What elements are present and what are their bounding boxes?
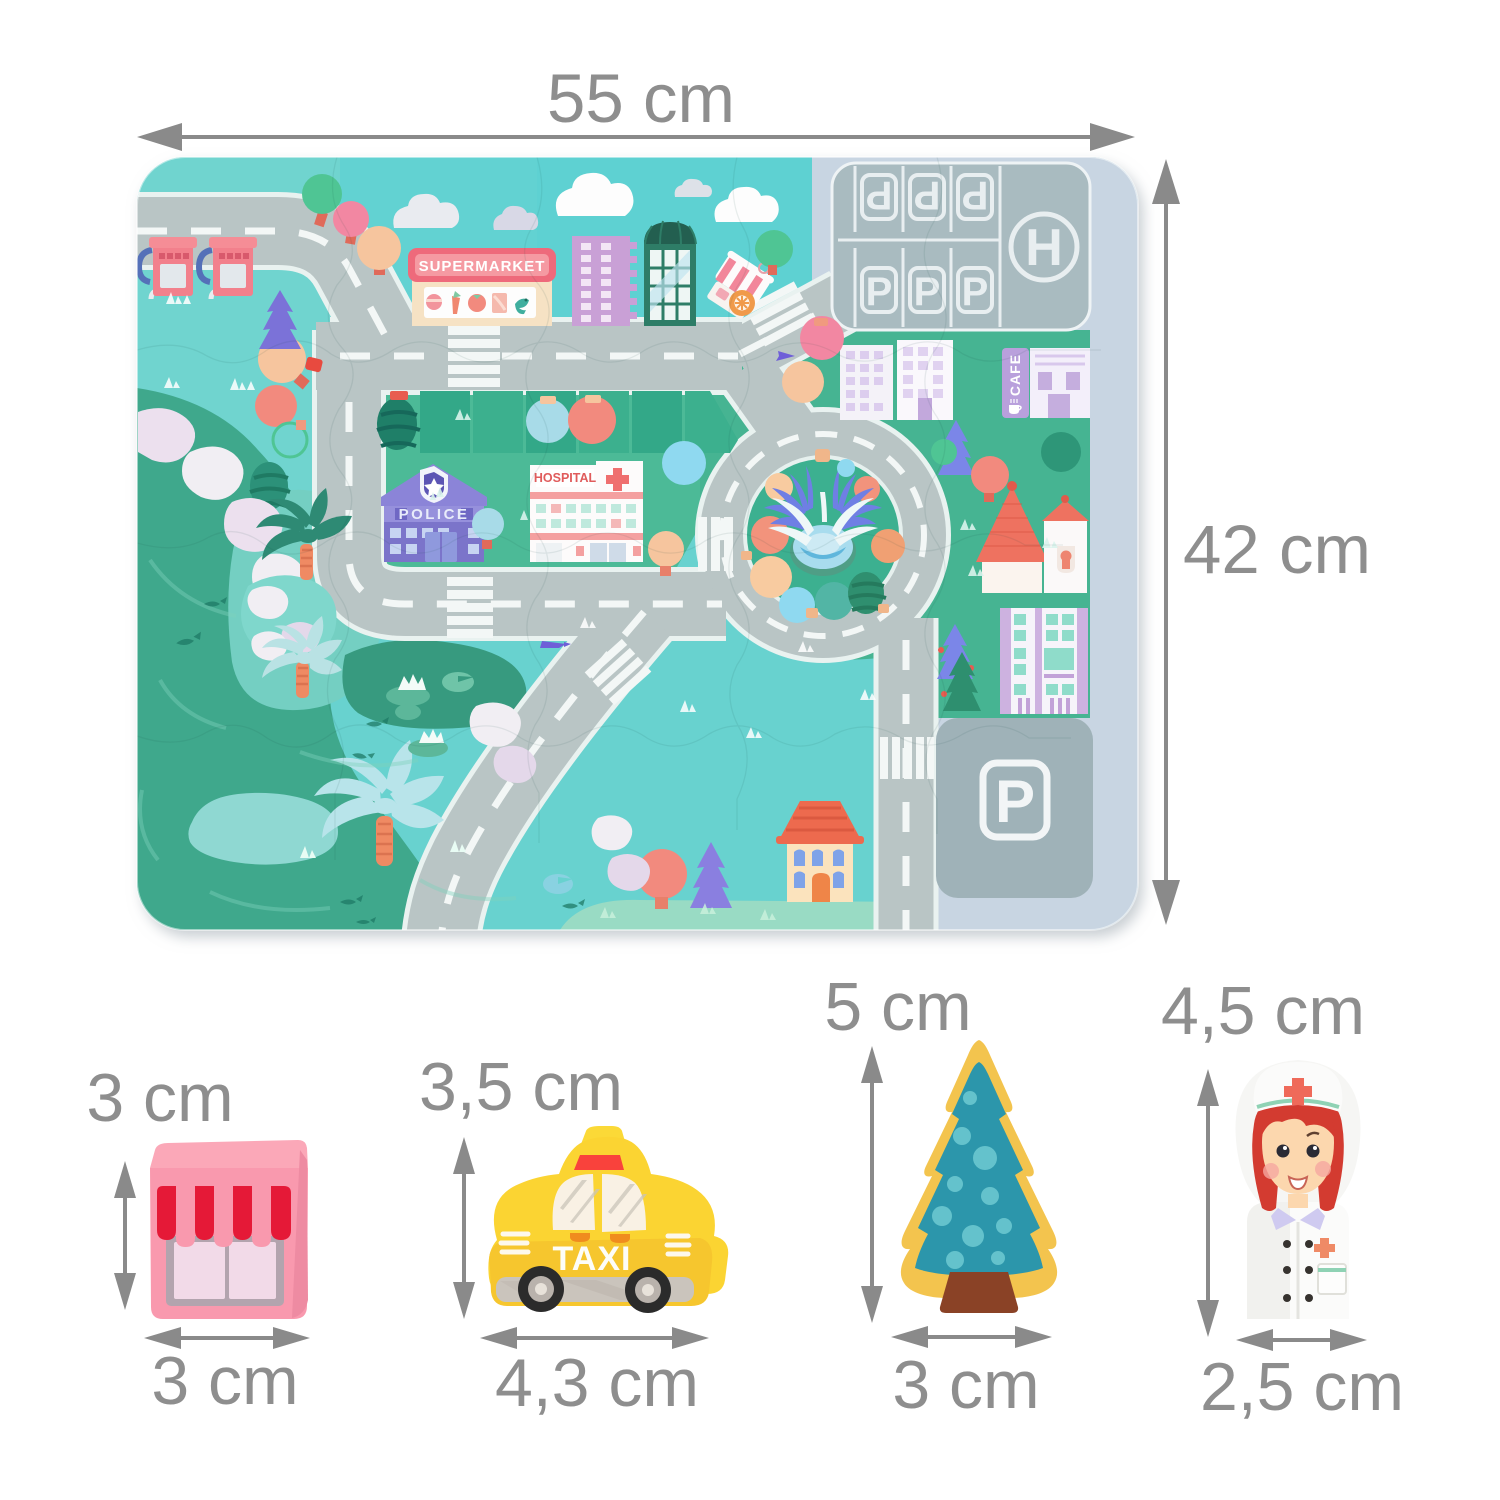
svg-text:42 cm: 42 cm	[1183, 511, 1371, 588]
svg-text:P: P	[962, 270, 989, 314]
svg-text:P: P	[866, 270, 893, 314]
svg-text:POLICE: POLICE	[399, 506, 470, 523]
svg-text:3 cm: 3 cm	[892, 1347, 1039, 1423]
svg-text:2,5 cm: 2,5 cm	[1200, 1349, 1404, 1425]
svg-text:HOSPITAL: HOSPITAL	[534, 471, 597, 485]
svg-text:H: H	[1025, 219, 1063, 277]
svg-text:4,5 cm: 4,5 cm	[1161, 973, 1365, 1049]
svg-text:P: P	[914, 173, 941, 217]
svg-text:P: P	[866, 173, 893, 217]
svg-text:P: P	[962, 173, 989, 217]
svg-text:3 cm: 3 cm	[151, 1343, 298, 1419]
svg-text:P: P	[914, 270, 941, 314]
svg-text:3,5 cm: 3,5 cm	[419, 1049, 623, 1125]
svg-text:SUPERMARKET: SUPERMARKET	[419, 258, 546, 275]
svg-text:55 cm: 55 cm	[547, 60, 735, 137]
svg-text:3 cm: 3 cm	[86, 1060, 233, 1136]
svg-text:TAXI: TAXI	[553, 1240, 632, 1278]
svg-text:CAFE: CAFE	[1007, 354, 1023, 396]
svg-text:5 cm: 5 cm	[824, 969, 971, 1045]
svg-text:4,3 cm: 4,3 cm	[495, 1345, 699, 1421]
svg-text:P: P	[995, 768, 1035, 835]
